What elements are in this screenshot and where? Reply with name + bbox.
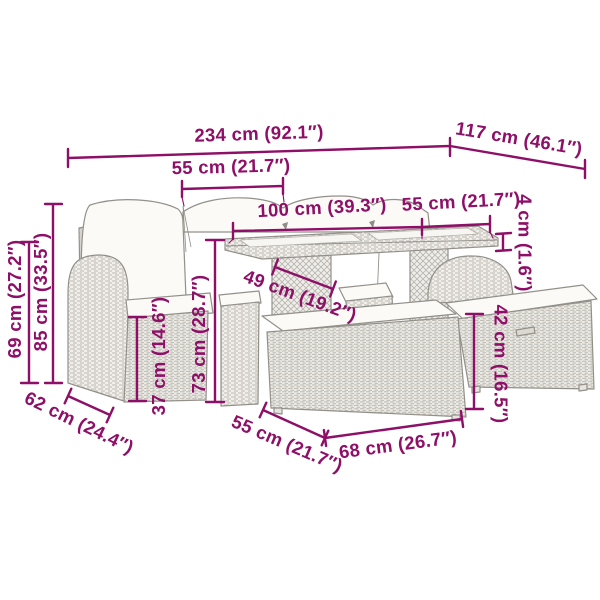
dim-label-seat-height: 37 cm (14.6″) [150,297,169,416]
dim-line-seat-width [182,178,283,197]
stool-base [221,302,259,406]
dim-label-armrest-height: 69 cm (27.2″) [6,240,25,359]
dim-label-tabletop-thickness: 4 cm (1.6″) [515,194,534,292]
dimension-diagram: 234 cm (92.1″) 117 cm (46.1″) 55 cm (21.… [0,0,600,600]
right-stool [446,285,597,393]
dim-label-back-height: 85 cm (33.5″) [32,233,51,352]
front-ottoman-base [267,317,466,417]
dim-label-stool-height: 42 cm (16.5″) [491,305,510,424]
dim-label-overall-width: 234 cm (92.1″) [194,123,324,146]
stool [219,291,261,406]
foot [274,408,282,414]
foot [579,384,587,391]
dim-label-seat-width: 55 cm (21.7″) [171,156,290,178]
sofa-armrest [68,255,128,402]
dim-label-table-height: 73 cm (28.7″) [190,275,209,394]
